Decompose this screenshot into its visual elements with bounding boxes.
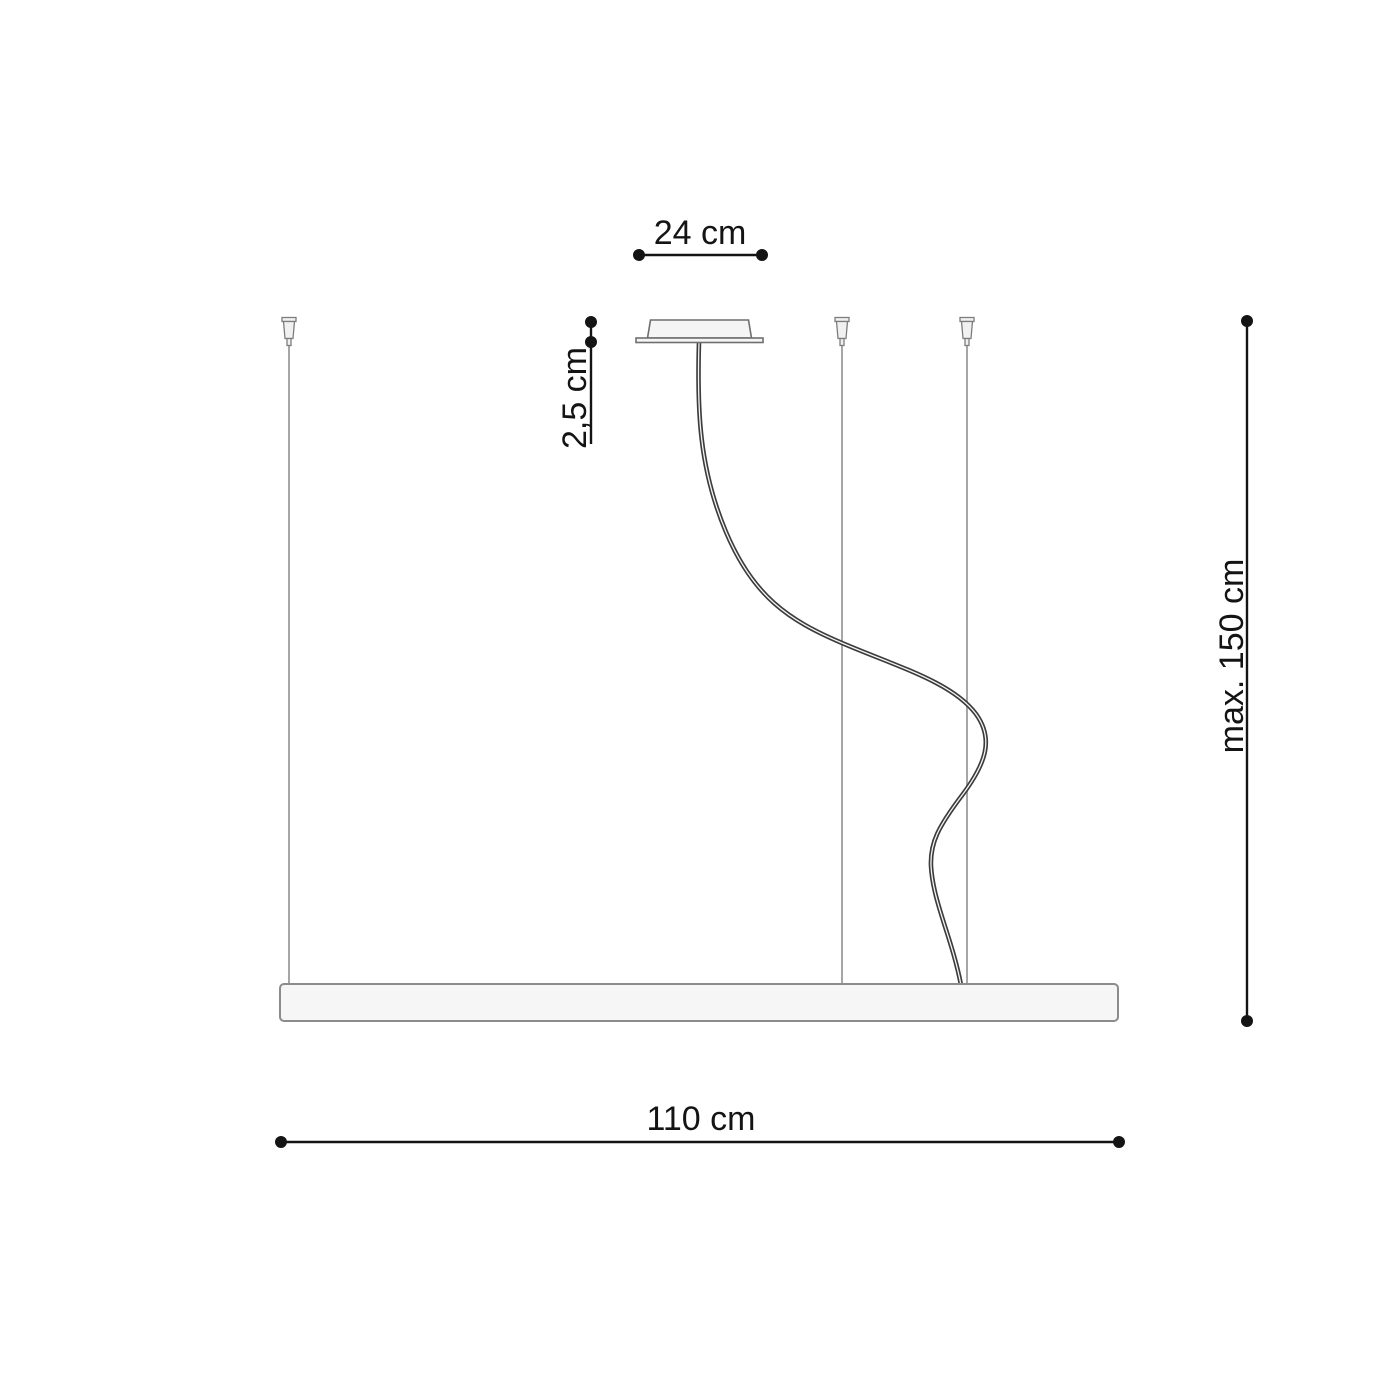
canopy-width-label: 24 cm xyxy=(590,214,810,252)
wire-connector xyxy=(960,318,974,346)
pendant-lamp-dimension-diagram: 24 cm 2,5 cm max. 150 cm 110 cm xyxy=(0,0,1400,1400)
canopy-height-label: 2,5 cm xyxy=(556,323,594,473)
light-bar xyxy=(280,984,1118,1021)
wire-connector xyxy=(835,318,849,346)
max-suspension-label: max. 150 cm xyxy=(1213,526,1251,786)
canopy-body xyxy=(648,320,752,338)
wire-connector xyxy=(282,318,296,346)
ceiling-canopy xyxy=(636,320,763,343)
diagram-drawing xyxy=(0,0,1400,1400)
canopy-flange xyxy=(636,338,763,343)
fixture-width-label: 110 cm xyxy=(591,1100,811,1138)
suspension-wires xyxy=(289,345,967,986)
wire-ceiling-connectors xyxy=(282,318,974,346)
